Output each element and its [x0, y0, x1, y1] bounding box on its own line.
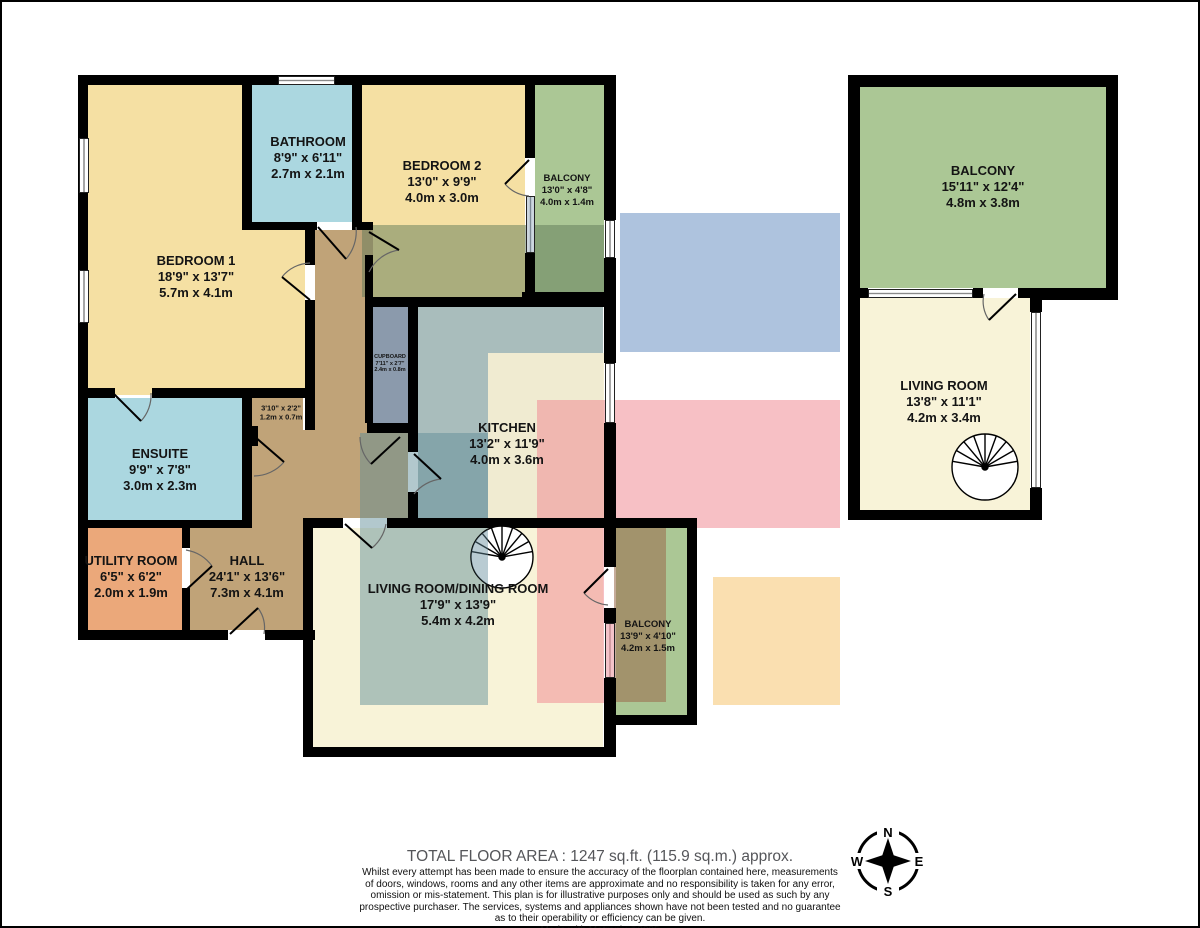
room-dims-imperial: 7'11" x 2'7"	[374, 361, 406, 368]
wall	[305, 222, 315, 265]
room-name: HALL	[209, 553, 285, 569]
wall	[1030, 298, 1042, 312]
label-bedroom1: BEDROOM 1 18'9" x 13'7" 5.7m x 4.1m	[157, 253, 236, 301]
room-dims-imperial: 13'0" x 9'9"	[403, 174, 482, 190]
disclaimer-line: of doors, windows, rooms and any other i…	[260, 879, 940, 891]
room-dims-metric: 4.8m x 3.8m	[942, 195, 1025, 211]
window	[605, 220, 615, 258]
wall	[152, 388, 305, 398]
room-name: UTILITY ROOM	[85, 553, 178, 569]
wall	[848, 75, 1118, 87]
room-dims-metric: 7.3m x 4.1m	[209, 585, 285, 601]
wall	[78, 630, 228, 640]
room-dims-imperial: 13'9" x 4'10"	[620, 631, 676, 643]
label-hall: HALL 24'1" x 13'6" 7.3m x 4.1m	[209, 553, 285, 601]
label-bedroom2: BEDROOM 2 13'0" x 9'9" 4.0m x 3.0m	[403, 158, 482, 206]
room-name: KITCHEN	[469, 420, 545, 436]
total-floor-area-text: TOTAL FLOOR AREA : 1247 sq.ft. (115.9 sq…	[0, 848, 1200, 866]
wall	[604, 85, 616, 220]
wall	[242, 398, 252, 528]
wall	[1106, 75, 1118, 300]
room-name: BEDROOM 2	[403, 158, 482, 174]
room-dims-imperial: 13'8" x 11'1"	[900, 394, 987, 410]
compass-north-label: N	[883, 825, 892, 840]
overlay-tan	[614, 524, 666, 702]
disclaimer-text: Whilst every attempt has been made to en…	[260, 867, 940, 928]
label-balcony-right: BALCONY 15'11" x 12'4" 4.8m x 3.8m	[942, 163, 1025, 211]
wall	[182, 588, 190, 630]
wall	[305, 300, 315, 430]
room-dims-imperial: 15'11" x 12'4"	[942, 179, 1025, 195]
room-dims-metric: 5.4m x 4.2m	[368, 613, 549, 629]
disclaimer-line: Whilst every attempt has been made to en…	[260, 867, 940, 879]
wall	[303, 518, 313, 757]
wall	[367, 423, 410, 433]
window	[79, 138, 89, 193]
room-name: BALCONY	[942, 163, 1025, 179]
overlay-sage	[362, 225, 604, 297]
room-dims-imperial: 8'9" x 6'11"	[270, 150, 346, 166]
room-name: LIVING ROOM/DINING ROOM	[368, 581, 549, 597]
wall	[848, 510, 1042, 520]
room-name: BALCONY	[620, 619, 676, 631]
wall	[687, 518, 697, 725]
label-balcony-top: BALCONY 13'0" x 4'8" 4.0m x 1.4m	[540, 173, 594, 209]
room-dims-imperial: 13'0" x 4'8"	[540, 185, 594, 197]
overlay-pink-band	[537, 400, 840, 528]
room-dims-metric: 3.0m x 2.3m	[123, 478, 197, 494]
room-dims-metric: 2.4m x 0.8m	[374, 367, 406, 374]
room-name: LIVING ROOM	[900, 378, 987, 394]
room-dims-imperial: 17'9" x 13'9"	[368, 597, 549, 613]
room-dims-imperial: 13'2" x 11'9"	[469, 436, 545, 452]
overlay-orange	[713, 577, 840, 705]
room-dims-metric: 1.2m x 0.7m	[260, 413, 303, 422]
wall	[616, 518, 697, 528]
wall	[973, 288, 983, 298]
wall	[365, 255, 373, 423]
wall	[604, 608, 616, 623]
wall	[848, 288, 868, 298]
label-balcony-bottom: BALCONY 13'9" x 4'10" 4.2m x 1.5m	[620, 619, 676, 655]
room-name: BEDROOM 1	[157, 253, 236, 269]
wall	[604, 258, 616, 363]
wall	[78, 75, 616, 85]
room-name: BATHROOM	[270, 134, 346, 150]
room-dims-metric: 4.2m x 3.4m	[900, 410, 987, 426]
wall	[182, 528, 190, 548]
wall	[604, 423, 616, 567]
room-hall-floor	[303, 430, 315, 518]
overlay-blue	[620, 213, 840, 352]
window	[278, 76, 335, 85]
wall	[408, 307, 418, 452]
wall	[387, 518, 604, 528]
room-dims-imperial: 3'10" x 2'2"	[260, 404, 303, 413]
wall	[303, 747, 616, 757]
label-living-dining: LIVING ROOM/DINING ROOM 17'9" x 13'9" 5.…	[368, 581, 549, 629]
floorplan-canvas: N E S W BEDROOM 1 18'9" x 13'7" 5.7m x 4…	[0, 0, 1200, 928]
room-dims-metric: 2.0m x 1.9m	[85, 585, 178, 601]
label-bathroom: BATHROOM 8'9" x 6'11" 2.7m x 2.1m	[270, 134, 346, 182]
room-dims-metric: 4.0m x 3.0m	[403, 190, 482, 206]
label-kitchen: KITCHEN 13'2" x 11'9" 4.0m x 3.6m	[469, 420, 545, 468]
room-name: BALCONY	[540, 173, 594, 185]
window	[605, 363, 615, 423]
wall	[78, 388, 115, 398]
room-dims-metric: 4.0m x 1.4m	[540, 197, 594, 209]
disclaimer-line: as to their operability or efficiency ca…	[260, 913, 940, 925]
overlay-teal	[360, 433, 488, 705]
label-living-right: LIVING ROOM 13'8" x 11'1" 4.2m x 3.4m	[900, 378, 987, 426]
wall	[408, 492, 418, 518]
wall	[522, 292, 604, 302]
window	[605, 623, 615, 678]
wall	[250, 426, 258, 446]
wall	[1018, 288, 1042, 298]
room-name: ENSUITE	[123, 446, 197, 462]
wall	[608, 715, 697, 725]
label-utility: UTILITY ROOM 6'5" x 6'2" 2.0m x 1.9m	[85, 553, 178, 601]
room-dims-metric: 4.2m x 1.5m	[620, 643, 676, 655]
room-dims-imperial: 9'9" x 7'8"	[123, 462, 197, 478]
wall	[78, 520, 252, 528]
wall	[242, 75, 252, 230]
disclaimer-line: prospective purchaser. The services, sys…	[260, 902, 940, 914]
wall	[525, 85, 535, 158]
room-dims-imperial: 6'5" x 6'2"	[85, 569, 178, 585]
room-dims-imperial: 18'9" x 13'7"	[157, 269, 236, 285]
disclaimer-line: omission or mis-statement. This plan is …	[260, 890, 940, 902]
window	[868, 289, 973, 298]
room-dims-metric: 4.0m x 3.6m	[469, 452, 545, 468]
window	[526, 196, 535, 253]
room-dims-metric: 5.7m x 4.1m	[157, 285, 236, 301]
label-cupboard: CUPBOARD 7'11" x 2'7" 2.4m x 0.8m	[374, 354, 406, 374]
window	[1031, 312, 1041, 488]
wall	[352, 75, 362, 230]
room-dims-imperial: 24'1" x 13'6"	[209, 569, 285, 585]
wall	[1042, 288, 1118, 300]
label-closet: 3'10" x 2'2" 1.2m x 0.7m	[260, 404, 303, 423]
room-name: CUPBOARD	[374, 354, 406, 361]
label-ensuite: ENSUITE 9'9" x 7'8" 3.0m x 2.3m	[123, 446, 197, 494]
window	[79, 270, 89, 323]
room-dims-metric: 2.7m x 2.1m	[270, 166, 346, 182]
